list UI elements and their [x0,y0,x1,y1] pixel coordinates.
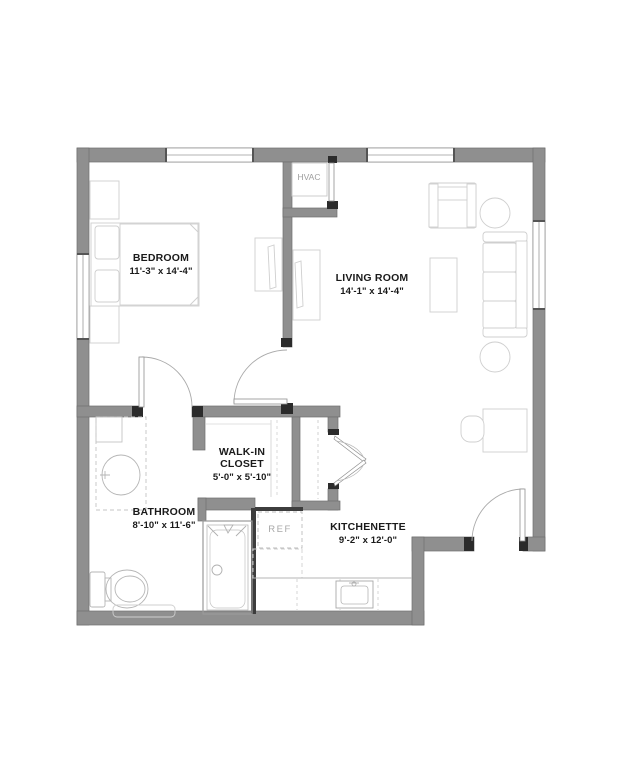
kitchenette-name: KITCHENETTE [308,521,428,533]
wall-bedroom-living-divider [283,162,292,347]
wall-right [533,148,545,551]
wall-hvac-bottom [283,208,337,217]
bathroom-name: BATHROOM [104,506,224,518]
ref-label: REF [259,524,301,535]
kitchenette-label: KITCHENETTE 9'-2" x 12'-0" [308,521,428,546]
window-right-living [533,220,545,310]
vanity [96,417,146,510]
hvac-label: HVAC [290,172,328,182]
shower [203,521,252,614]
desk [483,409,527,452]
kitchen-sink [336,581,373,608]
coffee-table [430,258,457,312]
walk-in-closet-dims: 5'-0" x 5'-10" [206,472,278,483]
wall-top [77,148,545,162]
cabinet [253,549,302,578]
wall-closet-north [192,406,340,417]
shower-head [224,525,233,533]
toilet [90,570,148,608]
faucet [100,471,110,479]
wall-left [77,148,89,625]
hvac-closet [292,163,334,201]
window-top-living [366,148,455,162]
floor-plan: BEDROOM 11'-3" x 14'-4" LIVING ROOM 14'-… [0,0,620,776]
wall-bottom [77,611,424,625]
side-table [480,342,510,372]
window-top-bedroom [165,148,254,162]
wall-kitchen-east [412,537,424,625]
entry-door [472,489,525,541]
living-room-name: LIVING ROOM [312,272,432,284]
living-room-door [234,350,287,404]
side-table [480,198,510,228]
living-room-label: LIVING ROOM 14'-1" x 14'-4" [312,272,432,297]
bathroom-door [139,357,192,407]
window-left-bedroom [77,253,89,340]
kitchenette-dims: 9'-2" x 12'-0" [308,535,428,546]
shower-knob [212,565,222,575]
floor-plan-drawing [0,0,620,776]
pantry-double-doors [334,436,366,486]
nightstand [90,306,119,343]
bathroom-dims: 8'-10" x 11'-6" [104,520,224,531]
walk-in-closet-name: WALK-IN CLOSET [206,446,278,470]
wall-closet-west-stub [193,417,205,450]
media-console-bedroom [255,238,282,291]
wall-ref-top-line [255,507,303,511]
bedroom-dims: 11'-3" x 14'-4" [101,266,221,277]
living-room-dims: 14'-1" x 14'-4" [312,286,432,297]
bathroom-label: BATHROOM 8'-10" x 11'-6" [104,506,224,531]
nightstand [90,181,119,219]
hvac-door [329,163,334,201]
wall-closet-east [292,417,300,510]
walk-in-closet-label: WALK-IN CLOSET 5'-0" x 5'-10" [206,446,278,483]
desk-chair [461,416,484,442]
bedroom-name: BEDROOM [101,252,221,264]
armchair [429,183,476,228]
bedroom-label: BEDROOM 11'-3" x 14'-4" [101,252,221,277]
sofa [483,232,527,337]
